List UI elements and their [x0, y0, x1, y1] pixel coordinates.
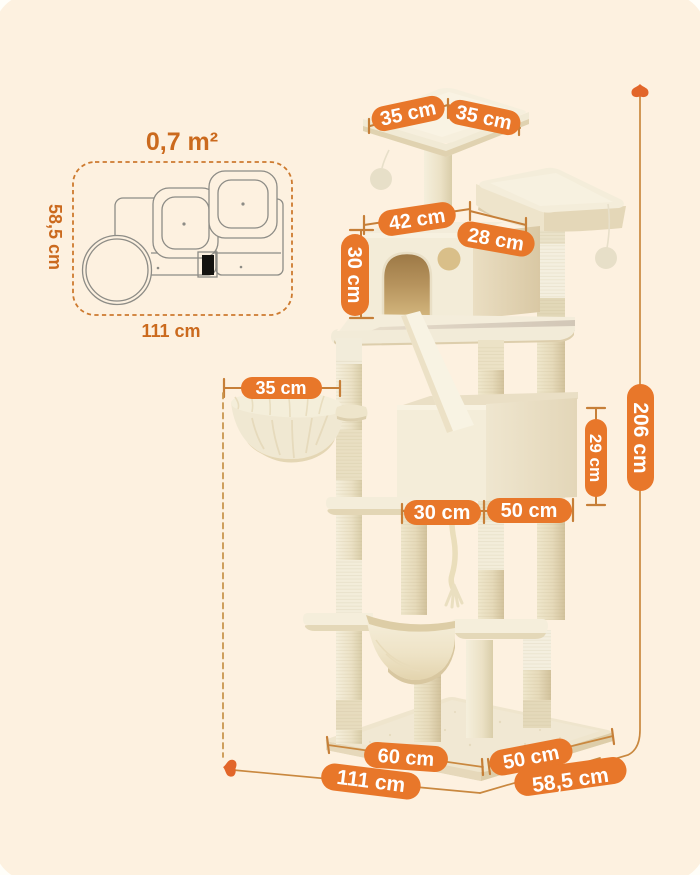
svg-text:60 cm: 60 cm	[377, 745, 435, 771]
svg-text:58,5 cm: 58,5 cm	[45, 204, 65, 270]
svg-text:111 cm: 111 cm	[141, 321, 200, 341]
svg-text:35 cm: 35 cm	[255, 378, 306, 398]
svg-text:0,7 m²: 0,7 m²	[146, 128, 218, 156]
svg-text:50 cm: 50 cm	[501, 500, 558, 522]
svg-text:206 cm: 206 cm	[629, 402, 652, 473]
svg-text:30 cm: 30 cm	[414, 502, 471, 524]
svg-text:30 cm: 30 cm	[343, 247, 365, 304]
svg-text:29 cm: 29 cm	[586, 434, 605, 482]
